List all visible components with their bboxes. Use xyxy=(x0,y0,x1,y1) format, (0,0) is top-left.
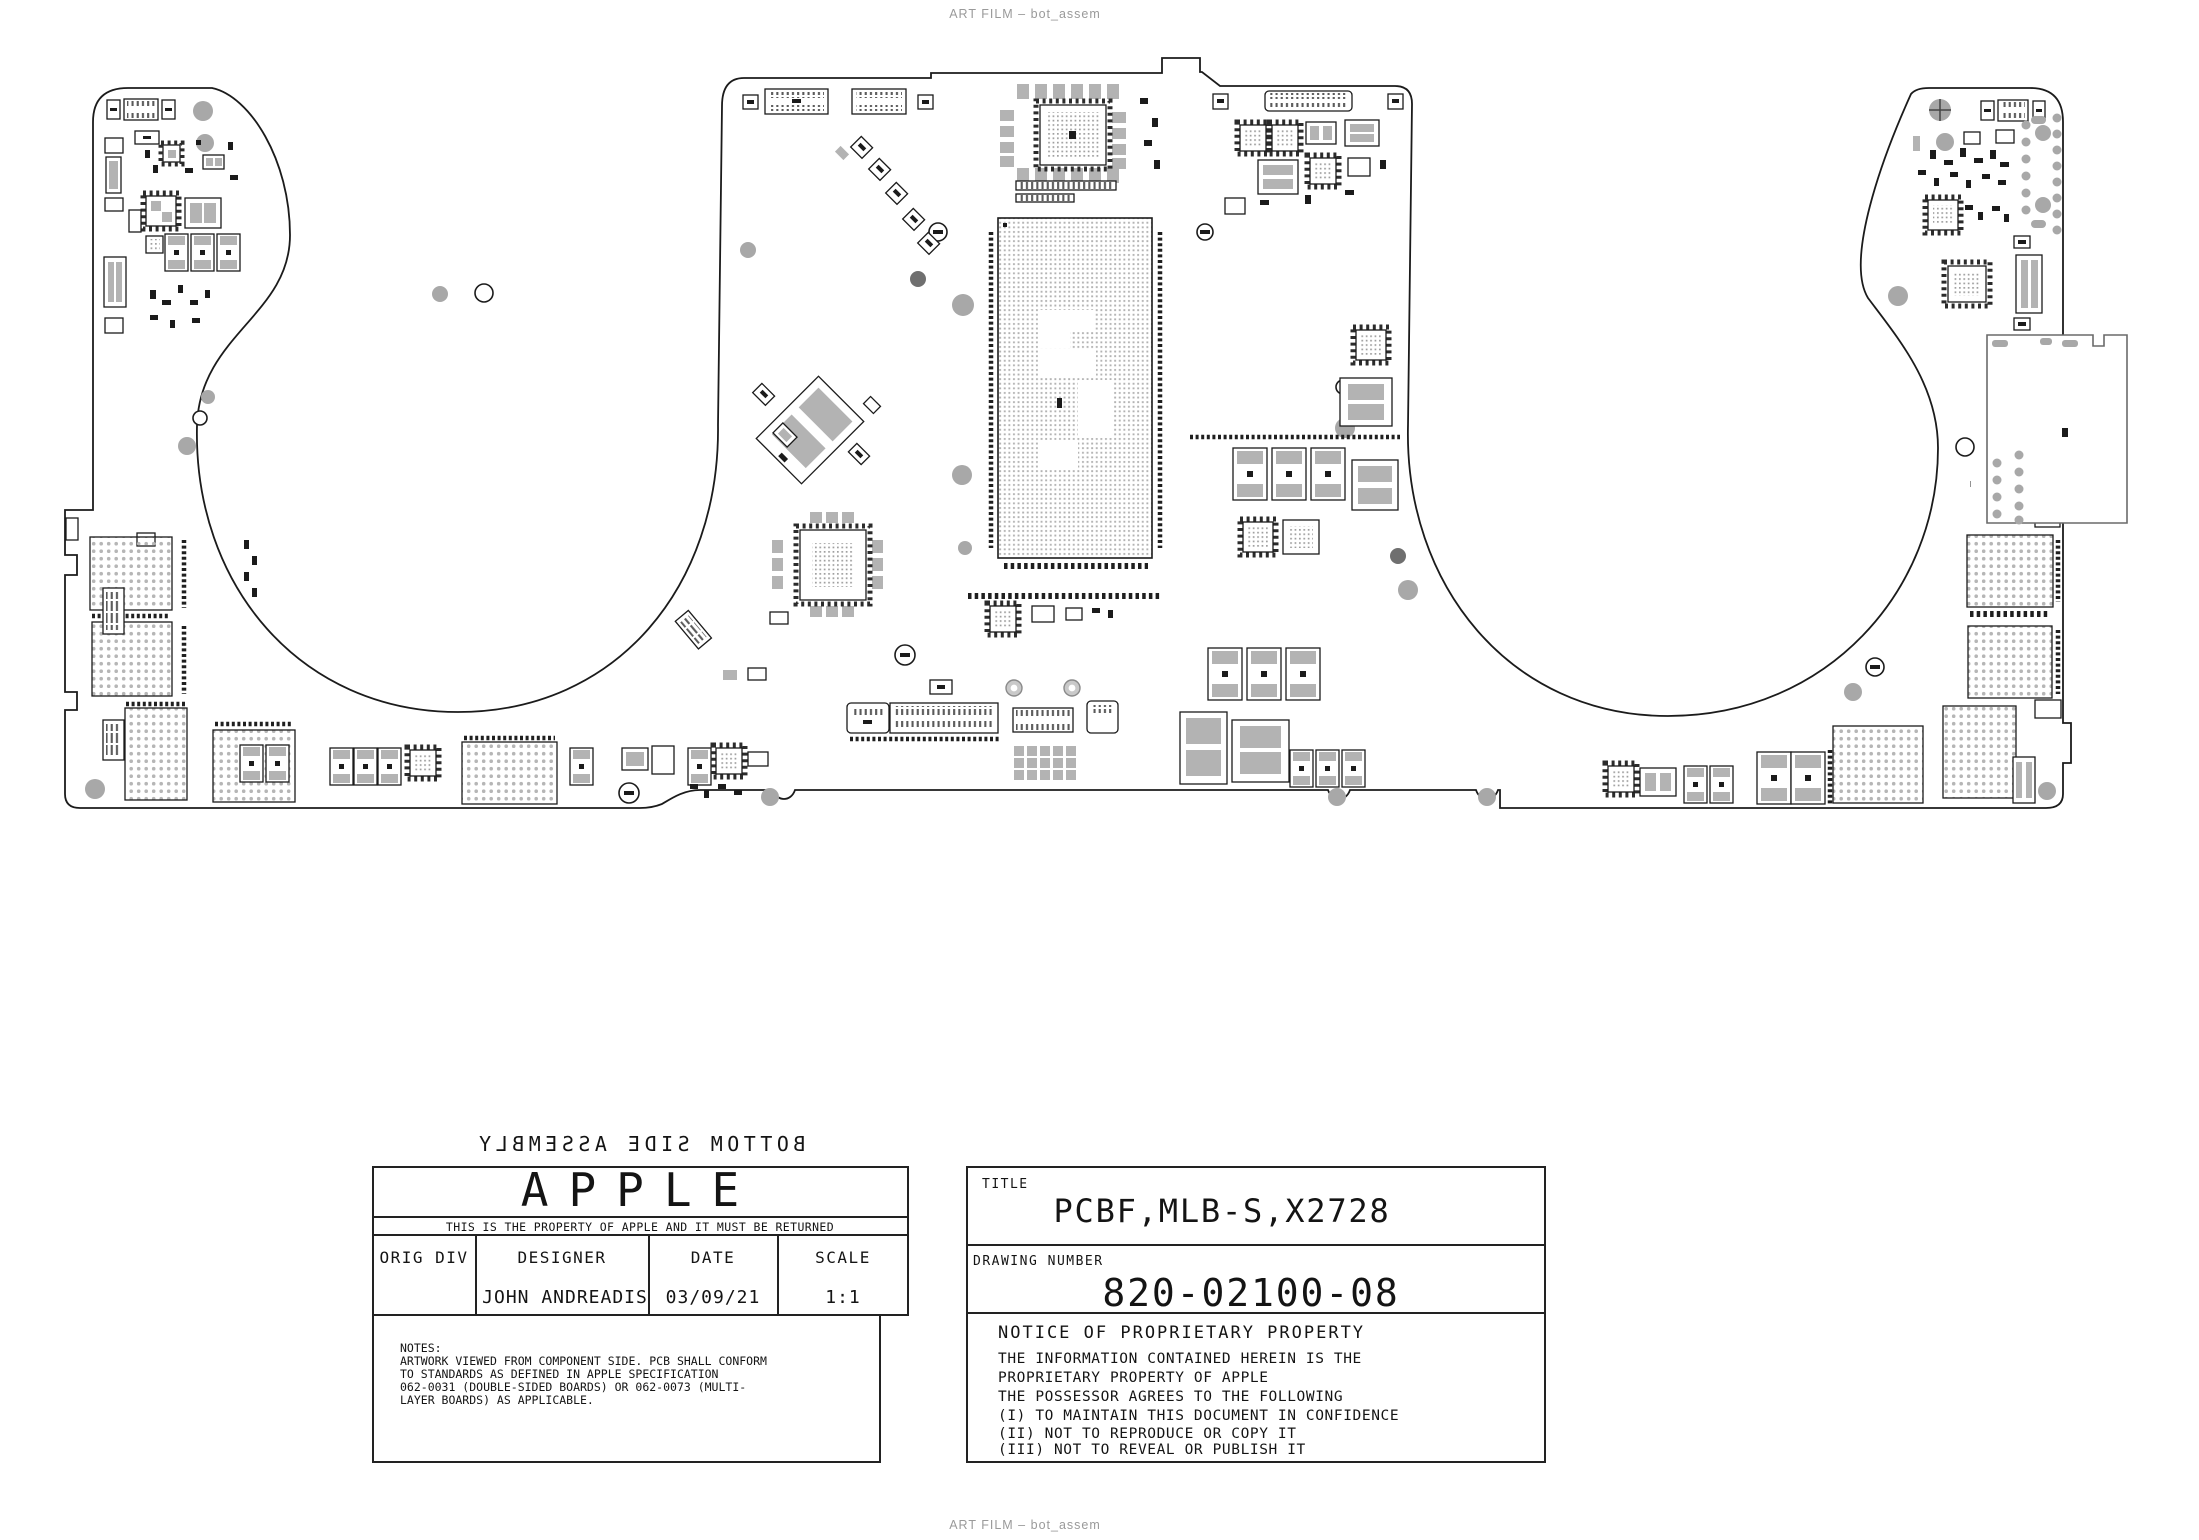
scale-value: 1:1 xyxy=(825,1287,861,1308)
property-notice: THIS IS THE PROPERTY OF APPLE AND IT MUS… xyxy=(446,1220,834,1234)
company-name: APPLE xyxy=(521,1163,759,1217)
scale-label: SCALE xyxy=(815,1248,871,1267)
edge-module-right xyxy=(1987,335,2127,525)
keyboard-pad-grid xyxy=(1014,746,1076,780)
notes-line: NOTES: xyxy=(400,1341,442,1355)
pcb-art-film-drawing: ART FILM – bot_assem ART FILM – bot_asse… xyxy=(0,0,2199,1540)
drawing-number-value: 820-02100-08 xyxy=(1102,1271,1399,1315)
orig-div-label: ORIG DIV xyxy=(379,1248,468,1267)
date-label: DATE xyxy=(691,1248,736,1267)
notice-line: (I) TO MAINTAIN THIS DOCUMENT IN CONFIDE… xyxy=(998,1408,1399,1424)
notes-line: 062-0031 (DOUBLE-SIDED BOARDS) OR 062-00… xyxy=(400,1380,746,1394)
art-film-label-top: ART FILM – bot_assem xyxy=(949,7,1101,21)
title-value: PCBF,MLB-S,X2728 xyxy=(1053,1192,1390,1230)
notice-line: (III) NOT TO REVEAL OR PUBLISH IT xyxy=(998,1442,1306,1458)
assembly-side-label-mirrored: BOTTOM SIDE ASSEMBLY xyxy=(475,1132,806,1156)
notice-line: THE POSSESSOR AGREES TO THE FOLLOWING xyxy=(998,1389,1343,1405)
notice-line: PROPRIETARY PROPERTY OF APPLE xyxy=(998,1370,1269,1386)
notice-line: (II) NOT TO REPRODUCE OR COPY IT xyxy=(998,1426,1297,1442)
notice-line: THE INFORMATION CONTAINED HEREIN IS THE xyxy=(998,1351,1362,1367)
art-film-label-bottom: ART FILM – bot_assem xyxy=(949,1518,1101,1532)
date-value: 03/09/21 xyxy=(666,1287,761,1308)
drawing-number-label: DRAWING NUMBER xyxy=(973,1254,1104,1269)
designer-label: DESIGNER xyxy=(517,1248,606,1267)
designer-value: JOHN ANDREADIS xyxy=(482,1287,648,1308)
notes-line: TO STANDARDS AS DEFINED IN APPLE SPECIFI… xyxy=(400,1367,719,1381)
notes-line: LAYER BOARDS) AS APPLICABLE. xyxy=(400,1393,594,1407)
notice-title: NOTICE OF PROPRIETARY PROPERTY xyxy=(998,1323,1365,1343)
title-label: TITLE xyxy=(982,1177,1029,1192)
notes-line: ARTWORK VIEWED FROM COMPONENT SIDE. PCB … xyxy=(400,1354,767,1368)
art-film-page: ART FILM – bot_assem ART FILM – bot_asse… xyxy=(0,0,2199,1540)
